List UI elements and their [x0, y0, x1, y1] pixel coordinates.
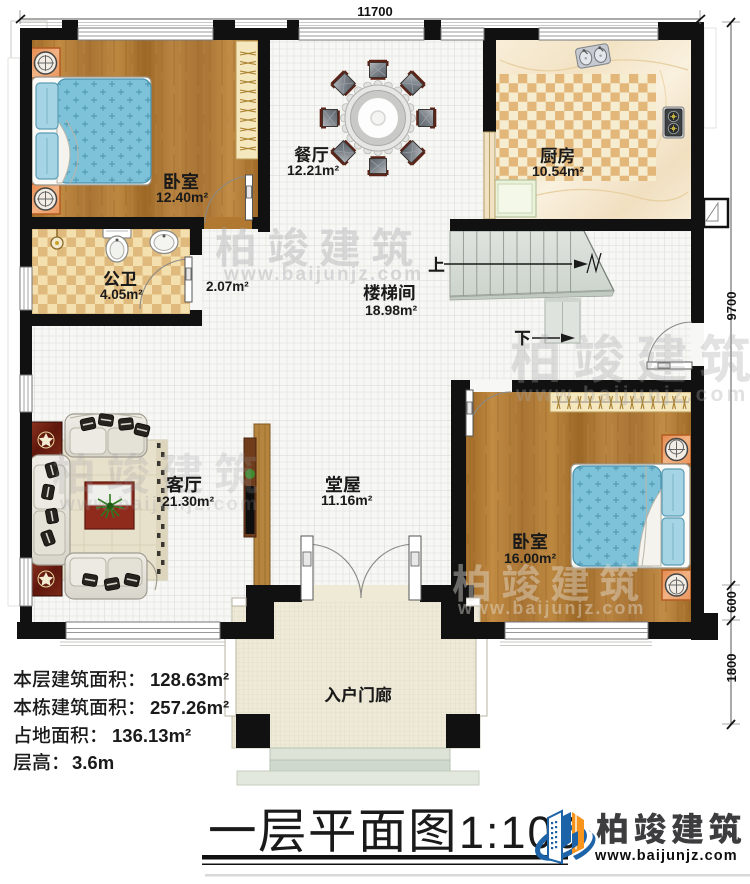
- svg-text:257.26m²: 257.26m²: [150, 697, 229, 718]
- svg-text:1800: 1800: [724, 654, 739, 683]
- svg-text:16.00m²: 16.00m²: [504, 550, 556, 566]
- svg-text:2.07m²: 2.07m²: [206, 279, 249, 294]
- svg-text:18.98m²: 18.98m²: [365, 302, 417, 318]
- svg-text:12.21m²: 12.21m²: [287, 162, 339, 178]
- svg-text:12.40m²: 12.40m²: [156, 189, 208, 205]
- svg-text:136.13m²: 136.13m²: [112, 725, 191, 746]
- svg-text:11700: 11700: [357, 4, 392, 19]
- svg-text:www.baijunjz.com: www.baijunjz.com: [457, 598, 645, 618]
- svg-text:www.baijunjz.com: www.baijunjz.com: [59, 494, 259, 515]
- svg-text:www.baijunjz.com: www.baijunjz.com: [594, 848, 738, 864]
- svg-text:11.16m²: 11.16m²: [321, 492, 373, 508]
- svg-text:4.05m²: 4.05m²: [100, 287, 143, 302]
- svg-text:3.6m: 3.6m: [72, 752, 114, 773]
- svg-text:600: 600: [724, 591, 739, 613]
- svg-text:21.30m²: 21.30m²: [162, 493, 214, 509]
- svg-text:128.63m²: 128.63m²: [150, 669, 229, 690]
- svg-text:10.54m²: 10.54m²: [532, 163, 584, 179]
- svg-text:9700: 9700: [724, 292, 739, 321]
- svg-text:www.baijunjz.com: www.baijunjz.com: [515, 383, 748, 406]
- svg-text:www.baijunjz.com: www.baijunjz.com: [223, 264, 423, 285]
